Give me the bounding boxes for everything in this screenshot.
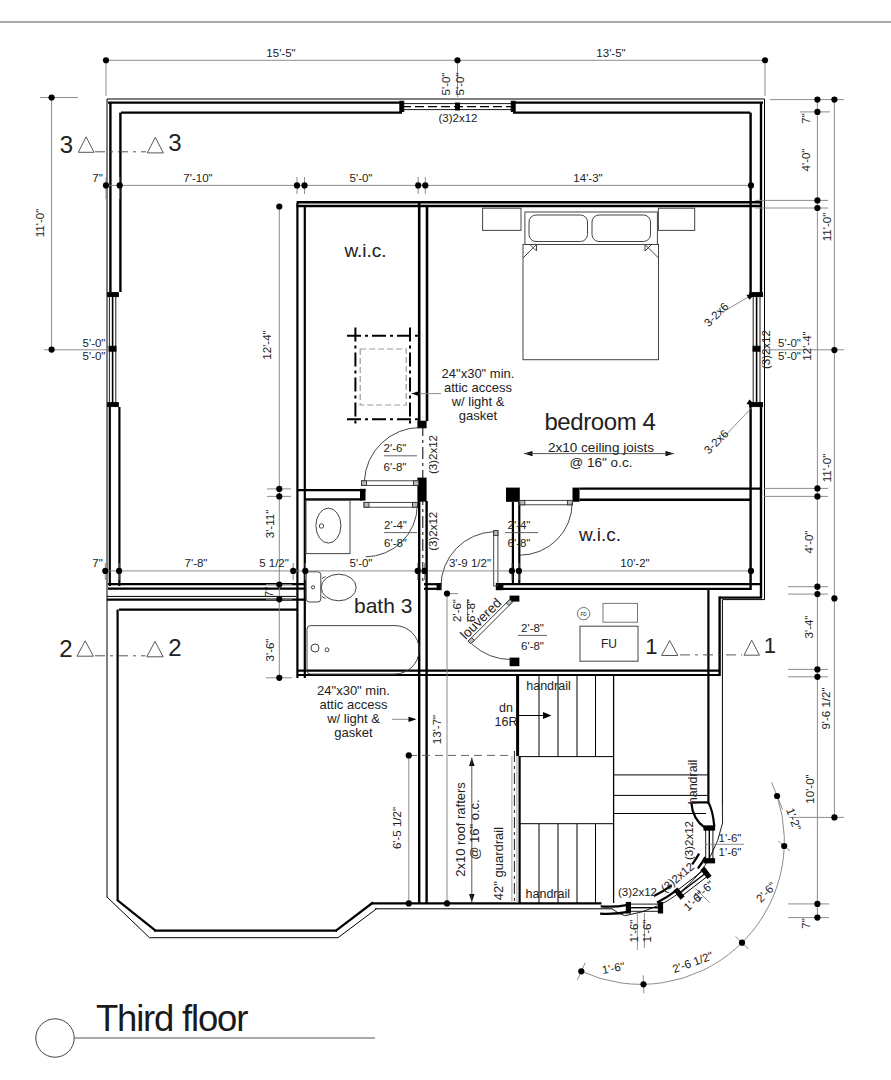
svg-text:(3)2x12: (3)2x12	[439, 112, 478, 124]
svg-text:w.i.c.: w.i.c.	[343, 240, 386, 261]
svg-text:10'-0": 10'-0"	[804, 774, 816, 803]
svg-text:7": 7"	[263, 587, 275, 597]
svg-text:3'-9 1/2": 3'-9 1/2"	[449, 557, 491, 569]
svg-text:handrail: handrail	[686, 760, 700, 804]
svg-text:7'-8": 7'-8"	[185, 557, 208, 569]
svg-text:1'-6": 1'-6"	[628, 920, 640, 943]
svg-text:2'-4": 2'-4"	[384, 519, 407, 531]
svg-text:(3)2x12: (3)2x12	[683, 821, 695, 860]
svg-text:11'-0": 11'-0"	[821, 213, 833, 241]
svg-text:5'-0": 5'-0"	[454, 73, 466, 96]
svg-text:handrail: handrail	[526, 679, 570, 693]
svg-text:5'-0": 5'-0"	[778, 350, 801, 362]
svg-text:w/ light &: w/ light &	[326, 711, 380, 726]
svg-text:2'-4": 2'-4"	[508, 519, 531, 531]
svg-text:attic access: attic access	[320, 697, 388, 712]
svg-text:bedroom 4: bedroom 4	[544, 408, 655, 435]
svg-text:2x10 ceiling joists: 2x10 ceiling joists	[548, 440, 654, 455]
svg-text:42" guardrail: 42" guardrail	[491, 827, 506, 900]
svg-text:14'-3": 14'-3"	[573, 172, 602, 184]
svg-text:6'-8": 6'-8"	[521, 640, 544, 652]
svg-text:12'-4": 12'-4"	[801, 331, 813, 360]
svg-text:4'-0": 4'-0"	[800, 149, 812, 172]
svg-text:1'-6": 1'-6"	[719, 832, 742, 844]
svg-text:2'-8": 2'-8"	[521, 622, 544, 634]
svg-text:15'-5": 15'-5"	[266, 47, 295, 59]
svg-text:11'-0": 11'-0"	[821, 454, 833, 482]
svg-text:FD: FD	[581, 612, 588, 617]
svg-text:24"x30" min.: 24"x30" min.	[317, 683, 390, 698]
svg-text:7": 7"	[92, 557, 102, 569]
svg-text:2'-6": 2'-6"	[384, 442, 407, 454]
svg-text:24"x30" min.: 24"x30" min.	[442, 366, 515, 381]
svg-text:3: 3	[60, 131, 73, 158]
svg-text:bath 3: bath 3	[354, 594, 412, 617]
svg-text:@ 16" o.c.: @ 16" o.c.	[570, 455, 633, 470]
svg-text:gasket: gasket	[334, 725, 373, 740]
svg-text:5'-0": 5'-0"	[778, 337, 801, 349]
svg-text:5'-0": 5'-0"	[350, 172, 373, 184]
svg-text:3: 3	[168, 129, 181, 156]
svg-text:6'-8": 6'-8"	[384, 537, 407, 549]
svg-text:7'-10": 7'-10"	[183, 172, 212, 184]
svg-text:@ 16" o.c.: @ 16" o.c.	[467, 799, 482, 859]
svg-text:7": 7"	[800, 918, 812, 928]
svg-text:3'-11": 3'-11"	[264, 510, 276, 538]
svg-text:7": 7"	[800, 113, 812, 123]
svg-text:3'-4": 3'-4"	[803, 616, 815, 639]
svg-text:attic access: attic access	[444, 380, 512, 395]
svg-text:5'-0": 5'-0"	[83, 337, 106, 349]
svg-text:2: 2	[59, 635, 72, 662]
svg-text:w/ light &: w/ light &	[451, 394, 505, 409]
svg-text:5'-0": 5'-0"	[83, 350, 106, 362]
svg-text:11'-0": 11'-0"	[34, 209, 46, 237]
svg-text:w.i.c.: w.i.c.	[578, 524, 621, 545]
svg-text:(3)2x12: (3)2x12	[427, 435, 439, 474]
svg-text:(3)2x12: (3)2x12	[618, 886, 657, 898]
svg-text:7": 7"	[92, 172, 102, 184]
svg-text:16R: 16R	[495, 715, 518, 729]
svg-text:Third floor: Third floor	[96, 998, 248, 1039]
svg-text:1: 1	[764, 633, 776, 658]
svg-text:10'-2": 10'-2"	[620, 557, 649, 569]
svg-text:6'-8": 6'-8"	[508, 537, 531, 549]
svg-text:2'-6": 2'-6"	[451, 599, 463, 622]
svg-text:2: 2	[168, 634, 181, 661]
svg-text:13'-5": 13'-5"	[596, 47, 625, 59]
svg-text:5'-0": 5'-0"	[350, 557, 373, 569]
svg-text:handrail: handrail	[526, 887, 570, 901]
svg-text:6'-8": 6'-8"	[384, 461, 407, 473]
svg-text:2x10 roof rafters: 2x10 roof rafters	[453, 782, 468, 877]
svg-text:1'-6": 1'-6"	[719, 846, 742, 858]
svg-text:1: 1	[645, 634, 657, 659]
svg-text:13'-7": 13'-7"	[431, 715, 443, 744]
svg-text:9'-6 1/2": 9'-6 1/2"	[820, 687, 832, 729]
svg-text:1'-6": 1'-6"	[641, 920, 653, 943]
svg-text:gasket: gasket	[459, 408, 498, 423]
svg-text:5'-0": 5'-0"	[440, 73, 452, 96]
svg-text:(3)2x12: (3)2x12	[427, 512, 439, 551]
svg-text:12'-4": 12'-4"	[261, 330, 273, 359]
svg-text:3'-6": 3'-6"	[264, 639, 276, 662]
svg-text:(3)2x12: (3)2x12	[760, 330, 772, 369]
svg-text:4'-0": 4'-0"	[803, 531, 815, 554]
svg-text:FU: FU	[601, 637, 617, 651]
svg-text:dn: dn	[499, 701, 513, 715]
svg-text:6'-5 1/2": 6'-5 1/2"	[391, 807, 403, 849]
svg-text:5 1/2": 5 1/2"	[259, 557, 289, 569]
